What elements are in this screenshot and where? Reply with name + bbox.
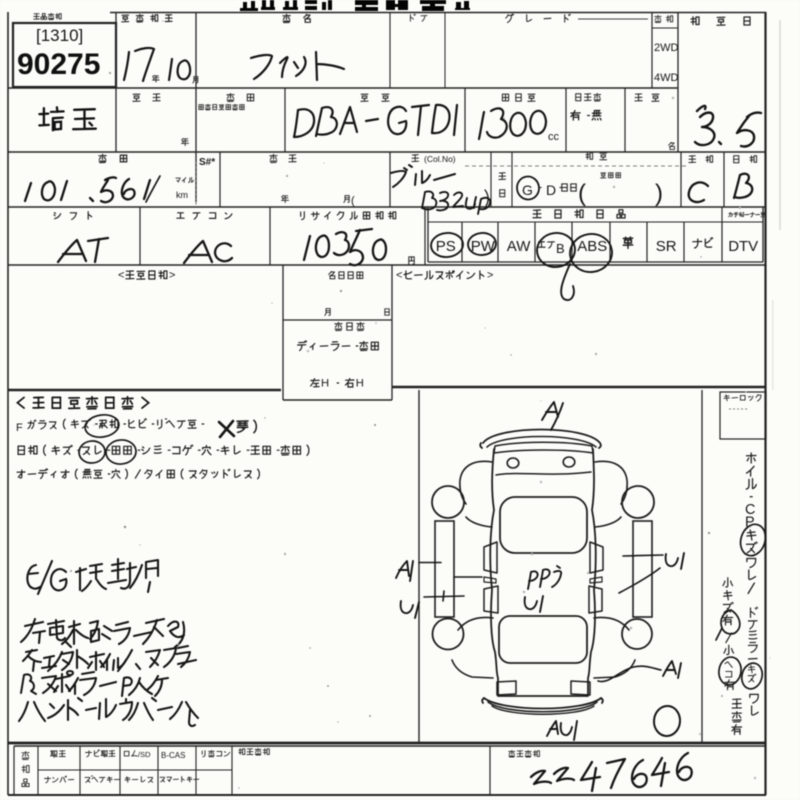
- svg-text:G: G: [522, 182, 533, 198]
- svg-text:): ): [655, 180, 663, 207]
- svg-text:(Col.No): (Col.No): [424, 154, 456, 164]
- svg-text:S#*: S#*: [199, 157, 215, 168]
- svg-text:<: <: [396, 270, 403, 282]
- svg-text:>: >: [487, 270, 494, 282]
- svg-text:(: (: [351, 195, 355, 207]
- svg-text:DTV: DTV: [728, 238, 758, 255]
- svg-text:cc: cc: [548, 131, 560, 143]
- svg-text:F: F: [16, 422, 23, 434]
- svg-text:B-CAS: B-CAS: [161, 751, 185, 760]
- svg-text:>: >: [169, 270, 176, 282]
- svg-text:PS: PS: [436, 238, 456, 255]
- svg-text:H: H: [356, 378, 364, 390]
- svg-text:H: H: [321, 378, 329, 390]
- svg-text:AW: AW: [507, 238, 531, 255]
- svg-text:D: D: [546, 182, 556, 198]
- svg-text:(: (: [578, 180, 586, 207]
- svg-text:4WD: 4WD: [654, 72, 679, 84]
- svg-text:km: km: [176, 190, 188, 200]
- svg-text:/SD: /SD: [138, 750, 151, 759]
- svg-text:90275: 90275: [17, 48, 100, 81]
- svg-text:[1310]: [1310]: [36, 26, 83, 45]
- svg-text:B: B: [556, 241, 565, 256]
- svg-text:2WD: 2WD: [654, 42, 679, 54]
- svg-text:SR: SR: [656, 238, 677, 255]
- svg-text:ABS: ABS: [577, 238, 607, 255]
- svg-text:<: <: [118, 270, 125, 282]
